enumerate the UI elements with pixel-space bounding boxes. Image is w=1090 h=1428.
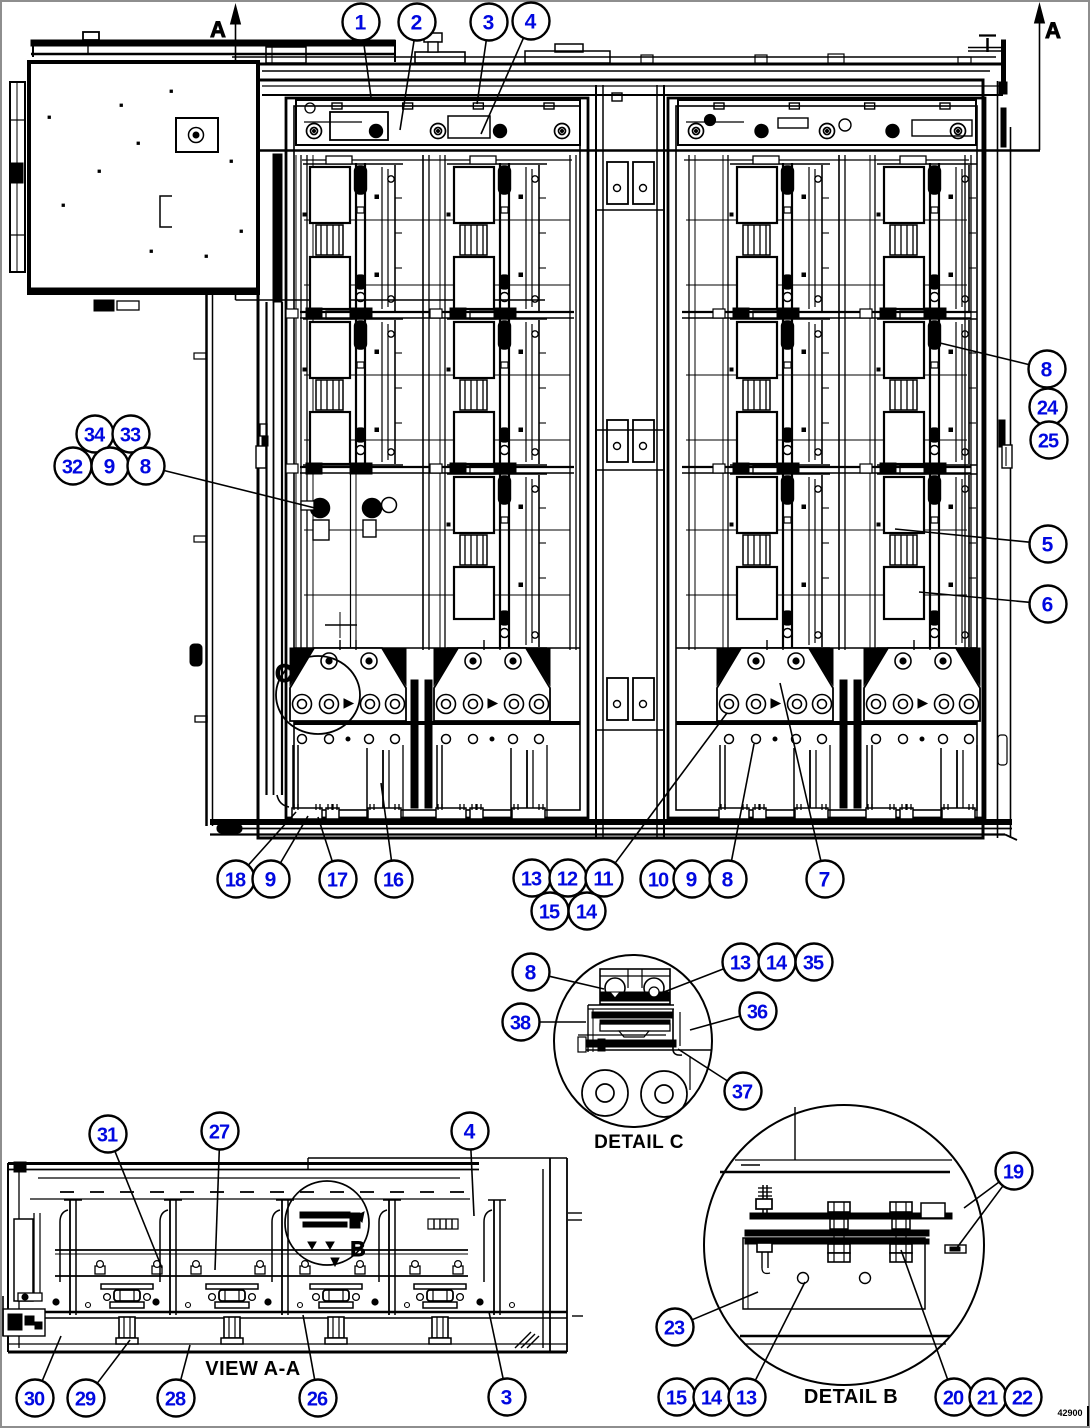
svg-text:42900: 42900 xyxy=(1057,1408,1082,1418)
svg-text:20: 20 xyxy=(943,1388,964,1410)
svg-text:21: 21 xyxy=(977,1388,998,1410)
svg-text:37: 37 xyxy=(732,1082,753,1104)
svg-text:8: 8 xyxy=(1041,359,1053,382)
svg-text:13: 13 xyxy=(521,869,542,891)
svg-text:13: 13 xyxy=(730,953,751,975)
svg-text:32: 32 xyxy=(62,457,83,479)
svg-text:18: 18 xyxy=(225,870,246,892)
svg-text:38: 38 xyxy=(510,1013,531,1035)
svg-text:3: 3 xyxy=(483,12,494,35)
svg-text:1: 1 xyxy=(355,12,367,35)
svg-text:36: 36 xyxy=(747,1002,768,1024)
svg-text:10: 10 xyxy=(648,870,669,892)
svg-text:33: 33 xyxy=(120,425,141,447)
svg-text:14: 14 xyxy=(766,953,788,975)
svg-text:VIEW A-A: VIEW A-A xyxy=(205,1358,300,1380)
svg-text:16: 16 xyxy=(383,870,404,892)
svg-text:35: 35 xyxy=(803,953,824,975)
svg-text:17: 17 xyxy=(327,870,348,892)
svg-text:27: 27 xyxy=(209,1122,230,1144)
svg-text:29: 29 xyxy=(75,1389,96,1411)
svg-text:9: 9 xyxy=(104,456,115,479)
svg-text:23: 23 xyxy=(664,1318,685,1340)
svg-text:8: 8 xyxy=(140,456,152,479)
svg-text:24: 24 xyxy=(1037,398,1059,420)
svg-text:6: 6 xyxy=(1042,594,1053,617)
svg-text:5: 5 xyxy=(1042,534,1054,557)
svg-text:4: 4 xyxy=(464,1121,476,1144)
svg-text:22: 22 xyxy=(1012,1388,1033,1410)
svg-text:C: C xyxy=(275,660,293,688)
svg-text:25: 25 xyxy=(1038,431,1059,453)
svg-text:3: 3 xyxy=(501,1387,512,1410)
svg-text:4: 4 xyxy=(525,11,537,34)
svg-text:31: 31 xyxy=(97,1125,118,1147)
svg-text:28: 28 xyxy=(165,1389,186,1411)
svg-text:B: B xyxy=(350,1238,365,1261)
svg-text:9: 9 xyxy=(265,869,276,892)
svg-text:A: A xyxy=(210,17,226,42)
svg-text:9: 9 xyxy=(686,869,697,892)
svg-text:34: 34 xyxy=(84,425,106,447)
svg-text:14: 14 xyxy=(576,902,598,924)
svg-text:DETAIL C: DETAIL C xyxy=(594,1132,684,1153)
svg-text:15: 15 xyxy=(539,902,560,924)
svg-text:15: 15 xyxy=(666,1388,687,1410)
svg-text:11: 11 xyxy=(593,869,613,891)
svg-text:7: 7 xyxy=(819,869,830,892)
svg-text:30: 30 xyxy=(24,1389,45,1411)
svg-text:14: 14 xyxy=(701,1388,723,1410)
svg-text:26: 26 xyxy=(307,1389,328,1411)
svg-text:DETAIL B: DETAIL B xyxy=(804,1386,898,1408)
svg-text:19: 19 xyxy=(1003,1162,1024,1184)
svg-text:12: 12 xyxy=(557,869,578,891)
svg-text:8: 8 xyxy=(722,869,734,892)
svg-text:2: 2 xyxy=(411,12,422,35)
svg-text:A: A xyxy=(1045,18,1061,43)
svg-text:13: 13 xyxy=(736,1388,757,1410)
svg-text:8: 8 xyxy=(525,962,537,985)
